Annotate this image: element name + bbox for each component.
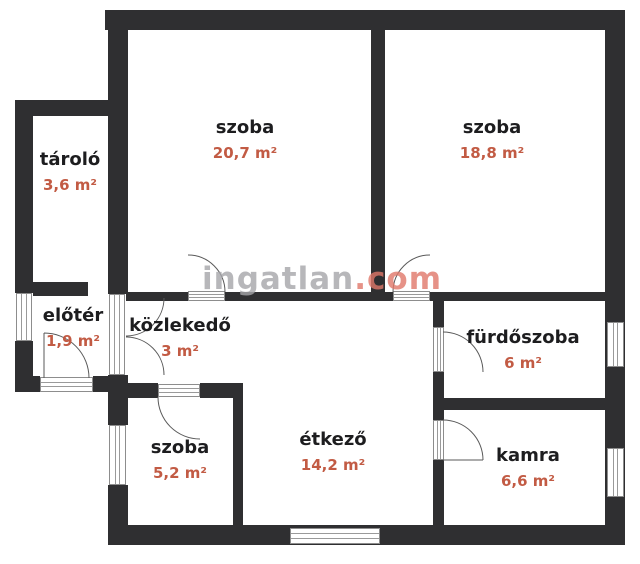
room-name: kamra — [468, 446, 588, 466]
watermark-tld: .com — [354, 261, 442, 297]
room-name: szoba — [185, 118, 305, 138]
door-arc-szoba3 — [158, 397, 200, 439]
room-label-furdoszoba: fürdőszoba 6 m² — [453, 328, 593, 372]
room-name: étkező — [273, 430, 393, 450]
room-label-szoba-1: szoba 20,7 m² — [185, 118, 305, 162]
room-area: 14,2 m² — [273, 456, 393, 474]
floor-plan: szoba 20,7 m² szoba 18,8 m² tároló 3,6 m… — [0, 0, 640, 564]
room-area: 6,6 m² — [468, 472, 588, 490]
room-area: 3 m² — [120, 342, 240, 360]
room-name: előtér — [13, 306, 133, 326]
room-name: tároló — [10, 150, 130, 170]
room-area: 18,8 m² — [432, 144, 552, 162]
room-label-kozlekedo: közlekedő 3 m² — [120, 316, 240, 360]
room-area: 5,2 m² — [120, 464, 240, 482]
watermark-name: ingatlan — [202, 261, 354, 297]
room-label-eloter: előtér 1,9 m² — [13, 306, 133, 350]
room-name: szoba — [120, 438, 240, 458]
room-name: szoba — [432, 118, 552, 138]
room-label-kamra: kamra 6,6 m² — [468, 446, 588, 490]
ingatlan-watermark: ingatlan.com — [202, 261, 442, 297]
room-label-szoba-2: szoba 18,8 m² — [432, 118, 552, 162]
room-area: 20,7 m² — [185, 144, 305, 162]
room-name: fürdőszoba — [453, 328, 593, 348]
room-area: 6 m² — [453, 354, 593, 372]
room-area: 1,9 m² — [13, 332, 133, 350]
room-label-etkezo: étkező 14,2 m² — [273, 430, 393, 474]
room-name: közlekedő — [120, 316, 240, 336]
room-label-tarolo: tároló 3,6 m² — [10, 150, 130, 194]
room-area: 3,6 m² — [10, 176, 130, 194]
room-label-szoba-3: szoba 5,2 m² — [120, 438, 240, 482]
